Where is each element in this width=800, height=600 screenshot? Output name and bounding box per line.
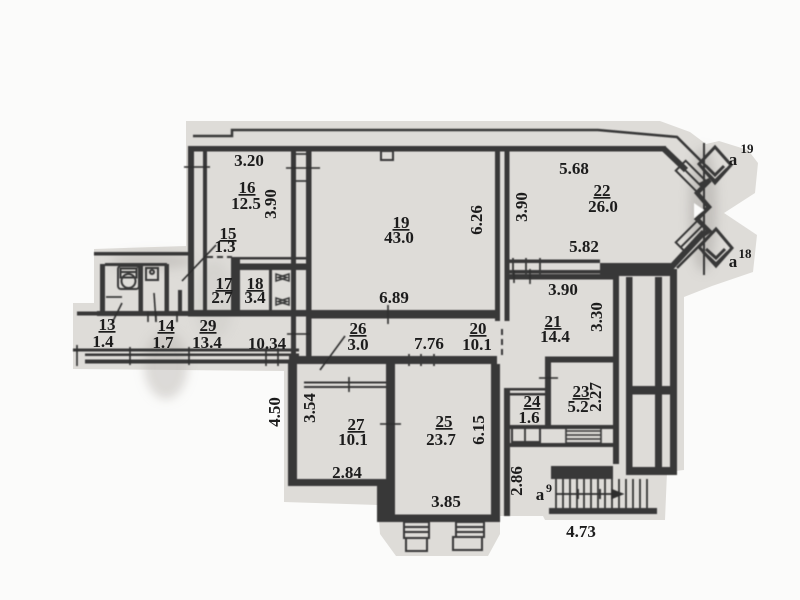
- svg-text:2.86: 2.86: [507, 466, 526, 496]
- svg-text:2.84: 2.84: [332, 463, 362, 482]
- svg-text:10.1: 10.1: [338, 430, 368, 449]
- svg-text:3.20: 3.20: [234, 151, 264, 170]
- svg-text:5.82: 5.82: [569, 237, 599, 256]
- svg-text:19: 19: [741, 141, 755, 156]
- svg-text:2.27: 2.27: [586, 382, 605, 412]
- svg-text:3.85: 3.85: [431, 492, 461, 511]
- svg-text:3.0: 3.0: [347, 335, 368, 354]
- svg-text:1.6: 1.6: [518, 408, 539, 427]
- svg-text:25: 25: [436, 412, 453, 431]
- svg-text:10.1: 10.1: [462, 335, 492, 354]
- svg-text:4.50: 4.50: [265, 397, 284, 427]
- svg-text:a: a: [729, 150, 738, 169]
- svg-text:6.26: 6.26: [467, 205, 486, 235]
- svg-text:1.3: 1.3: [214, 237, 235, 256]
- svg-text:6.89: 6.89: [379, 288, 409, 307]
- svg-text:12.5: 12.5: [231, 194, 261, 213]
- svg-text:a: a: [729, 252, 738, 271]
- svg-text:5.68: 5.68: [559, 159, 589, 178]
- svg-text:3.90: 3.90: [548, 280, 578, 299]
- svg-text:10.34: 10.34: [248, 334, 287, 353]
- svg-text:2.7: 2.7: [211, 288, 233, 307]
- svg-text:14.4: 14.4: [540, 327, 570, 346]
- svg-text:23.7: 23.7: [426, 430, 456, 449]
- svg-text:3.30: 3.30: [587, 302, 606, 332]
- svg-text:43.0: 43.0: [384, 228, 414, 247]
- svg-text:6.15: 6.15: [469, 415, 488, 445]
- svg-text:9: 9: [546, 481, 552, 495]
- svg-text:a: a: [536, 485, 545, 504]
- svg-text:18: 18: [739, 246, 753, 261]
- svg-text:3.4: 3.4: [244, 288, 266, 307]
- svg-text:1.7: 1.7: [152, 333, 174, 352]
- svg-text:26.0: 26.0: [588, 197, 618, 216]
- svg-text:3.90: 3.90: [261, 189, 280, 219]
- svg-text:4.73: 4.73: [566, 522, 596, 541]
- svg-text:3.90: 3.90: [512, 192, 531, 222]
- svg-text:3.54: 3.54: [300, 393, 319, 423]
- svg-text:1.4: 1.4: [92, 332, 114, 351]
- svg-text:13.4: 13.4: [192, 333, 222, 352]
- svg-text:7.76: 7.76: [414, 334, 444, 353]
